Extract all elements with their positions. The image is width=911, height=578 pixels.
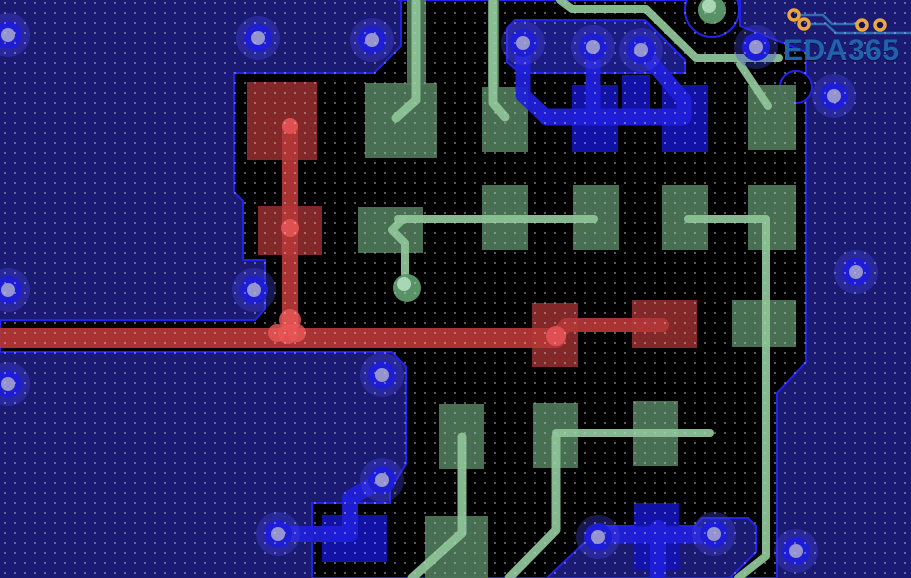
red-via-blob [278,324,298,344]
pad-green [748,85,796,150]
via-hole [591,530,605,544]
red-via-blob [282,118,298,134]
via-hole [247,283,261,297]
green-via-hole [397,277,411,291]
logo-pad [875,20,885,30]
via-hole [634,43,648,57]
via-hole [849,265,863,279]
eda365-watermark: EDA365 [783,36,911,70]
via-hole [1,377,15,391]
pad-green [365,83,437,158]
via-hole [271,527,285,541]
via-hole [251,31,265,45]
via-hole [749,40,763,54]
logo-pad [857,20,867,30]
pad-green [425,516,488,578]
via-hole [789,544,803,558]
via-hole [827,89,841,103]
via-hole [707,527,721,541]
via-hole [516,36,530,50]
via-hole [375,473,389,487]
red-via-blob [281,219,299,237]
via-hole [586,40,600,54]
via-hole [365,33,379,47]
logo-pad [789,10,799,20]
pcb-canvas[interactable] [0,0,911,578]
via-hole [1,283,15,297]
logo-pad [799,19,809,29]
red-via-blob [546,326,566,346]
via-hole [375,368,389,382]
pcb-viewport[interactable]: EDA365 [0,0,911,578]
via-hole [1,28,15,42]
